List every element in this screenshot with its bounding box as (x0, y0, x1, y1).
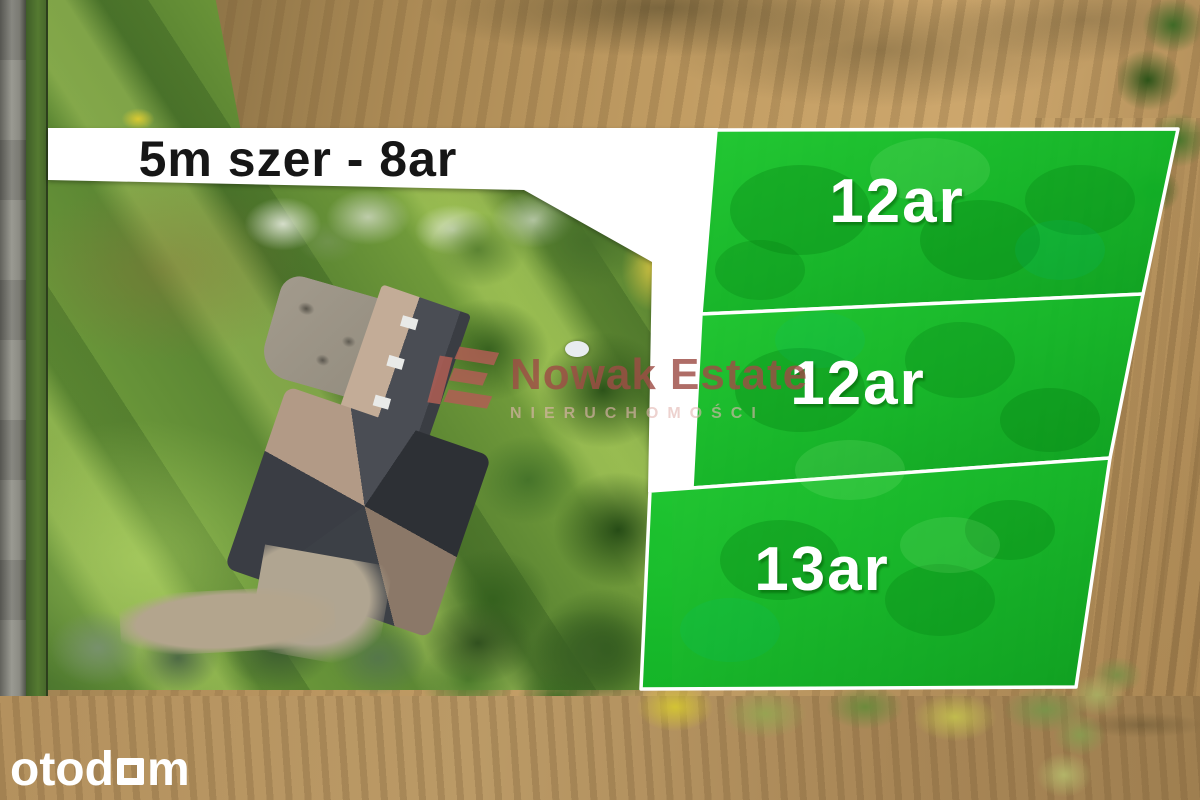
otodom-logo: otodm (10, 742, 190, 797)
watermark-text: Nowak Estate NIERUCHOMOŚCI (510, 346, 854, 423)
agency-name: Nowak Estate (510, 346, 854, 403)
otodom-logo-prefix: otod (10, 742, 114, 797)
logo-bar (454, 347, 499, 366)
plot-label-1: 12ar (829, 167, 965, 236)
agency-subtitle: NIERUCHOMOŚCI (510, 405, 854, 423)
agency-watermark: Nowak Estate NIERUCHOMOŚCI (434, 346, 854, 446)
nowak-estate-logo-icon (430, 343, 503, 414)
square-o-glyph (117, 758, 144, 785)
plot-label-3: 13ar (754, 535, 890, 604)
banner-text: 5m szer - 8ar (139, 131, 458, 187)
logo-bar (449, 368, 488, 386)
otodom-logo-suffix: m (147, 742, 190, 797)
aerial-listing-photo: 5m szer - 8ar 12ar 12ar 13ar Nowak Estat… (0, 0, 1200, 800)
logo-bar (444, 389, 493, 408)
